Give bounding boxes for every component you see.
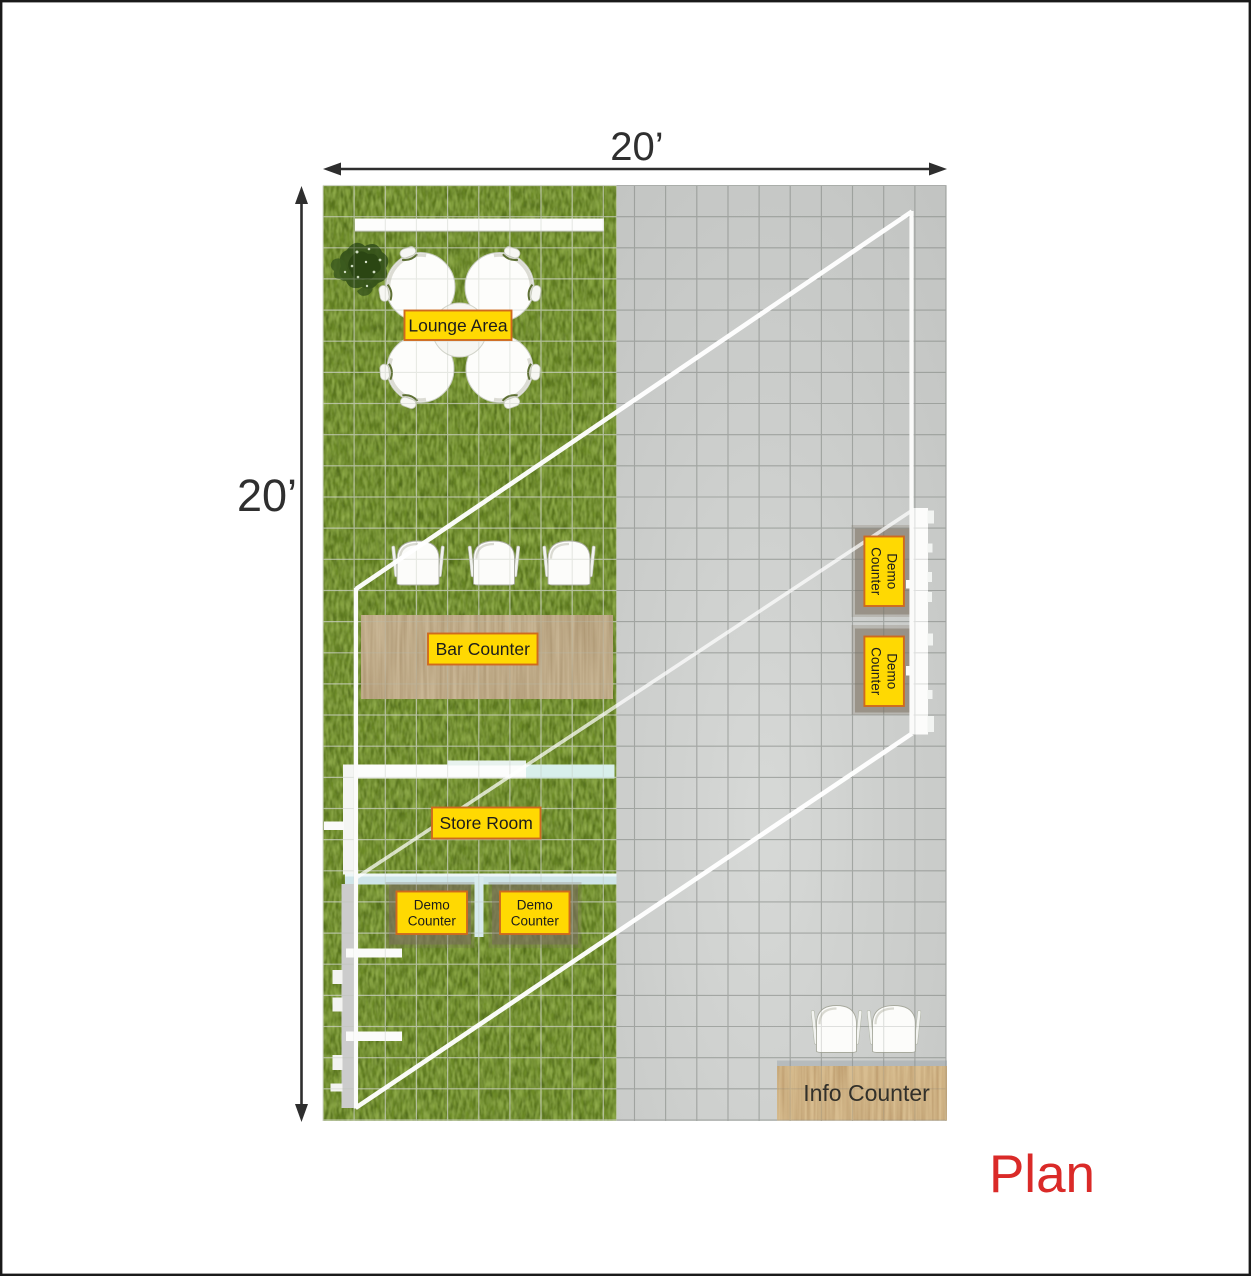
svg-text:Counter: Counter: [868, 647, 883, 696]
svg-text:Counter: Counter: [868, 547, 883, 596]
svg-text:Demo: Demo: [885, 553, 900, 589]
svg-text:Lounge Area: Lounge Area: [408, 315, 508, 335]
svg-text:Bar Counter: Bar Counter: [436, 639, 531, 659]
svg-text:Demo: Demo: [414, 897, 450, 912]
svg-text:Counter: Counter: [408, 914, 457, 929]
svg-text:20’: 20’: [237, 470, 297, 521]
svg-text:Store Room: Store Room: [440, 813, 533, 833]
svg-text:Counter: Counter: [511, 914, 560, 929]
svg-text:20’: 20’: [610, 125, 663, 169]
svg-text:Demo: Demo: [517, 897, 553, 912]
svg-text:Info Counter: Info Counter: [803, 1080, 930, 1106]
svg-text:Demo: Demo: [885, 653, 900, 689]
svg-text:Plan: Plan: [989, 1145, 1095, 1204]
